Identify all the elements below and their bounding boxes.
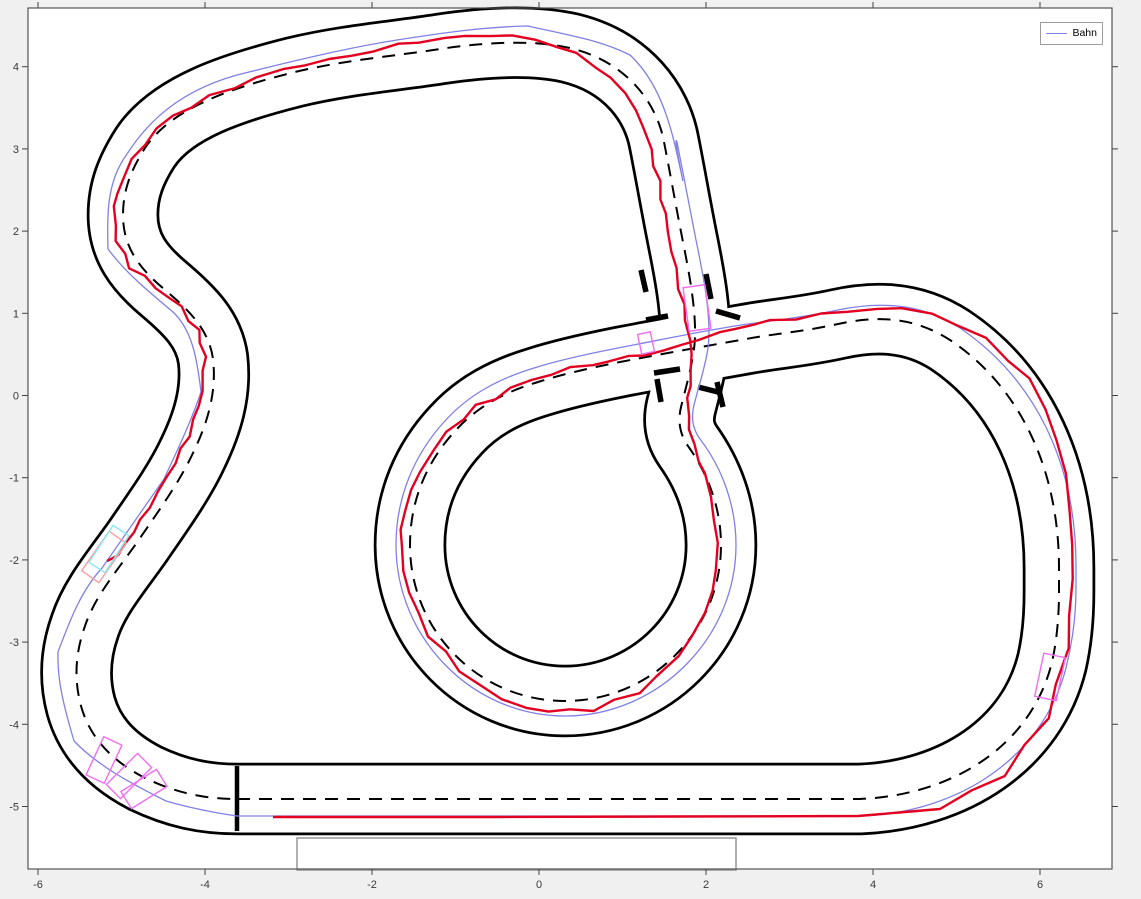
y-tick-label: -3 [9, 637, 19, 649]
x-tick-label: 0 [536, 879, 542, 891]
x-tick-label: 4 [870, 879, 876, 891]
y-tick-label: -5 [9, 802, 19, 814]
y-tick-label: 1 [13, 308, 19, 320]
legend: Bahn [1040, 22, 1103, 45]
x-tick-label: 6 [1037, 879, 1043, 891]
legend-entry-label: Bahn [1072, 28, 1097, 39]
y-tick-label: 3 [13, 144, 19, 156]
y-tick-label: 0 [13, 391, 19, 403]
track-plot: -6-4-2024643210-1-2-3-4-5 [0, 0, 1141, 899]
y-tick-label: 2 [13, 226, 19, 238]
x-tick-label: -6 [33, 879, 43, 891]
y-tick-label: 4 [13, 62, 19, 74]
matlab-figure: -6-4-2024643210-1-2-3-4-5 Bahn [0, 0, 1141, 899]
x-tick-label: -4 [200, 879, 210, 891]
legend-line-sample [1046, 33, 1067, 34]
x-tick-label: -2 [367, 879, 377, 891]
y-tick-label: -1 [9, 473, 19, 485]
y-tick-label: -2 [9, 555, 19, 567]
x-tick-label: 2 [703, 879, 709, 891]
y-tick-label: -4 [9, 719, 19, 731]
